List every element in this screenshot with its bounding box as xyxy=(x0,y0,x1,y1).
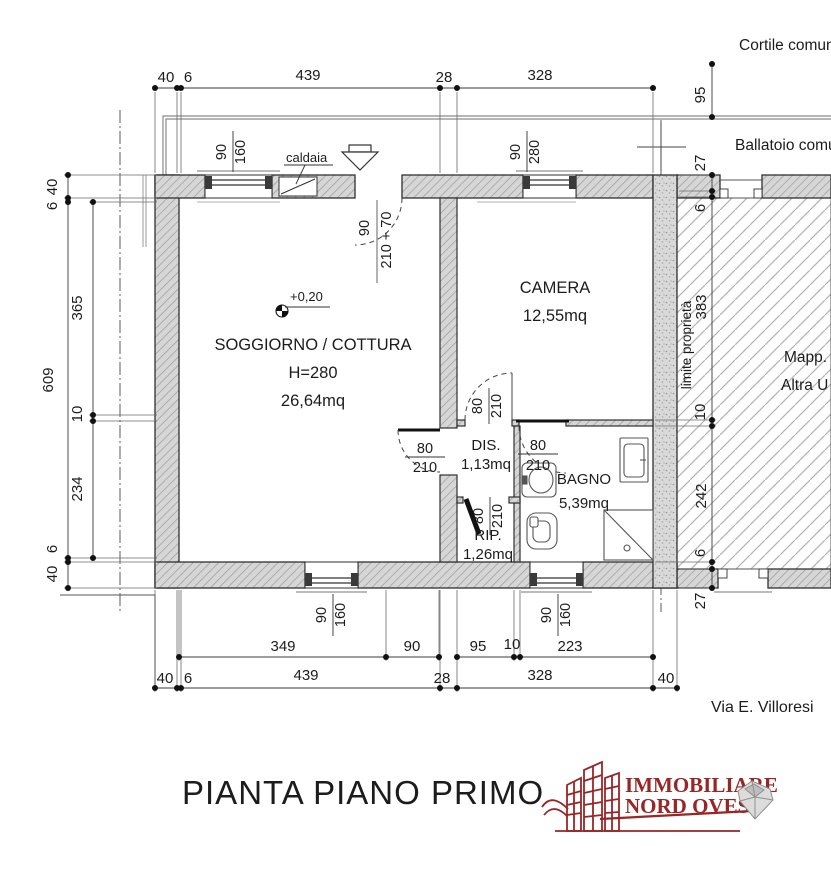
dim-bottom-90: 90 xyxy=(404,638,421,655)
dim-top-40: 40 xyxy=(158,69,175,86)
rip-area: 1,26mq xyxy=(463,546,513,563)
camera-area: 12,55mq xyxy=(523,307,587,325)
window-soggiorno-top xyxy=(197,171,280,202)
dim-left-40-top: 40 xyxy=(44,179,61,196)
dim-top-6: 6 xyxy=(184,69,192,86)
dim-right-242: 242 xyxy=(693,483,710,508)
title-block: PIANTA PIANO PRIMO IMMOBILIARE NORD OVES… xyxy=(182,762,778,831)
plan-title: PIANTA PIANO PRIMO xyxy=(182,774,544,811)
dim-left-40-bottom: 40 xyxy=(44,566,61,583)
sogg-door-height: 210 xyxy=(413,460,437,476)
courtyard-label: Cortile comune xyxy=(739,37,831,54)
shower xyxy=(604,510,653,560)
dim-top-439: 439 xyxy=(295,67,320,84)
other-unit-label: Altra U xyxy=(781,377,828,394)
dim-bottom-223: 223 xyxy=(557,638,582,655)
dim-left-6-bottom: 6 xyxy=(44,545,61,553)
interior-walls xyxy=(440,198,653,562)
dim-bottom-10: 10 xyxy=(504,636,521,653)
property-limit-label: limite proprietà xyxy=(679,300,694,389)
dim-bottom-40-left: 40 xyxy=(157,670,174,687)
soggiorno-area: 26,64mq xyxy=(281,392,345,410)
level-marker xyxy=(276,305,330,317)
win3-height: 160 xyxy=(333,603,349,627)
dim-right-27-top: 27 xyxy=(692,155,709,172)
win2-height: 280 xyxy=(527,140,543,164)
dim-top-28: 28 xyxy=(436,69,453,86)
dim-left-365: 365 xyxy=(69,295,86,320)
dim-labels-bottom: 349 90 95 10 223 40 6 439 28 328 40 xyxy=(157,636,675,687)
dim-right-6-bottom: 6 xyxy=(692,549,709,557)
toilet xyxy=(527,513,557,549)
win1-width: 90 xyxy=(214,144,230,160)
dim-bottom-40-right: 40 xyxy=(658,670,675,687)
dim-right-95: 95 xyxy=(692,87,709,104)
camera-name: CAMERA xyxy=(520,279,591,297)
win3-width: 90 xyxy=(314,607,330,623)
dis-area: 1,13mq xyxy=(461,456,511,473)
entry-arrow-icon xyxy=(342,145,378,170)
window-bagno-bottom xyxy=(521,562,592,592)
dim-right-27-bottom: 27 xyxy=(692,593,709,610)
window-soggiorno-bottom xyxy=(296,562,367,592)
soggiorno-height: H=280 xyxy=(288,364,337,382)
camera-door-width: 80 xyxy=(470,398,486,414)
dim-left-6-top: 6 xyxy=(44,202,61,210)
entry-height: 210 + 70 xyxy=(379,212,395,269)
win4-height: 160 xyxy=(558,603,574,627)
dim-labels-left: 40 6 609 6 40 365 10 234 xyxy=(40,179,86,583)
entry-width: 90 xyxy=(357,220,373,236)
dim-bottom-28: 28 xyxy=(434,670,451,687)
room-labels: SOGGIORNO / COTTURA H=280 26,64mq CAMERA… xyxy=(214,150,611,563)
floor-plan-canvas: 40 6 439 28 328 349 90 95 10 223 40 6 43… xyxy=(0,0,831,885)
dim-top-328: 328 xyxy=(527,67,552,84)
street-label: Via E. Villoresi xyxy=(711,699,814,716)
rip-door-width: 80 xyxy=(471,508,487,524)
dim-left-609: 609 xyxy=(40,367,57,392)
dis-name: DIS. xyxy=(471,437,500,454)
dim-bottom-6: 6 xyxy=(184,670,192,687)
dim-right-383: 383 xyxy=(693,294,710,319)
dim-left-10: 10 xyxy=(69,406,86,423)
balcony-label: Ballatoio comune xyxy=(735,137,831,154)
rip-name: RIP. xyxy=(474,527,501,544)
sogg-door-width: 80 xyxy=(417,441,433,457)
dim-bottom-349: 349 xyxy=(270,638,295,655)
dim-bottom-328: 328 xyxy=(527,667,552,684)
washing-column xyxy=(620,438,648,482)
bagno-area: 5,39mq xyxy=(559,495,609,512)
dim-bottom-95: 95 xyxy=(470,638,487,655)
bagno-door-height: 210 xyxy=(526,458,550,474)
camera-door-height: 210 xyxy=(489,394,505,418)
level-label: +0,20 xyxy=(290,289,323,304)
dim-labels-top: 40 6 439 28 328 xyxy=(158,67,553,86)
dim-right-10: 10 xyxy=(692,404,709,421)
agency-logo: IMMOBILIARE NORD OVEST xyxy=(542,762,778,831)
party-wall xyxy=(653,175,677,588)
rip-door-height: 210 xyxy=(490,504,506,528)
soggiorno-name: SOGGIORNO / COTTURA xyxy=(214,336,411,354)
map-ref-label: Mapp. xyxy=(784,349,827,366)
bagno-door-width: 80 xyxy=(530,438,546,454)
win2-width: 90 xyxy=(508,144,524,160)
survey-cross-icon xyxy=(637,123,686,171)
dim-bottom-439: 439 xyxy=(293,667,318,684)
win4-width: 90 xyxy=(539,607,555,623)
win1-height: 160 xyxy=(233,140,249,164)
dim-right-6-top: 6 xyxy=(692,204,709,212)
dim-left-234: 234 xyxy=(69,476,86,501)
caldaia-label: caldaia xyxy=(286,150,328,165)
bagno-name: BAGNO xyxy=(557,471,611,488)
floor-plan-page: 40 6 439 28 328 349 90 95 10 223 40 6 43… xyxy=(0,0,831,885)
